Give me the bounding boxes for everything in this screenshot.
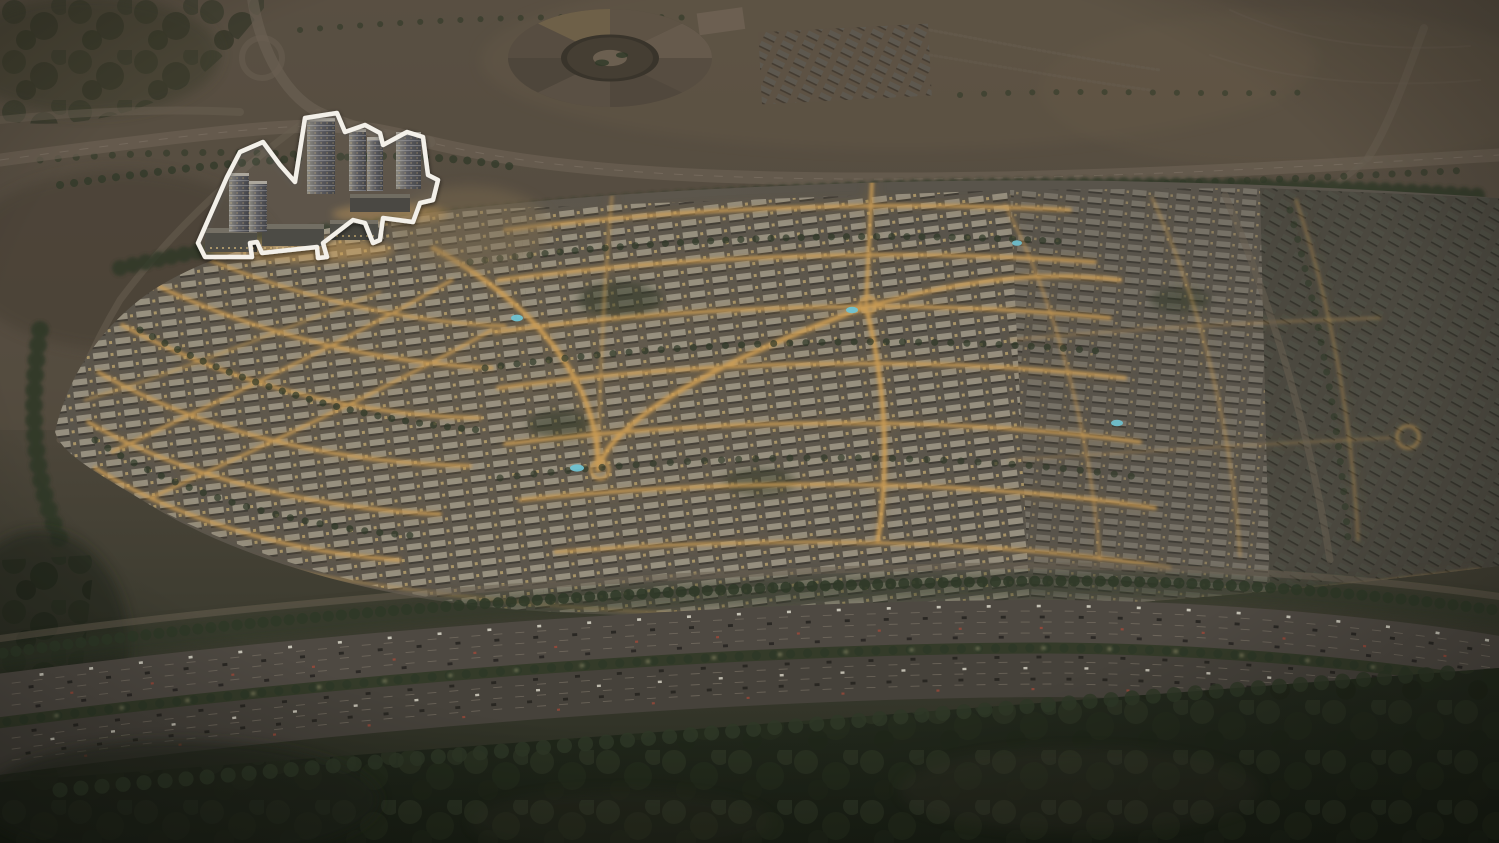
aerial-scene — [0, 0, 1499, 843]
vignette-overlay — [0, 0, 1499, 843]
aerial-render — [0, 0, 1499, 843]
